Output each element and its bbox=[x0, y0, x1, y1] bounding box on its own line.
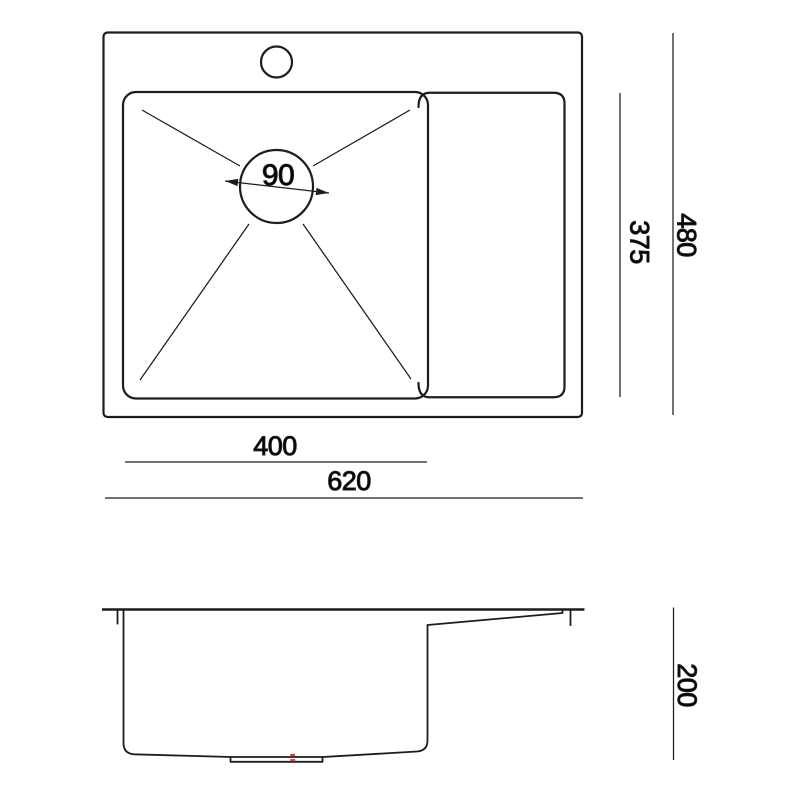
drainboard-outline bbox=[419, 93, 565, 398]
sink-technical-drawing: 90 375 480 400 620 bbox=[0, 0, 800, 800]
drain-center-mark-bottom bbox=[290, 759, 295, 761]
dim-label-sink-height: 200 bbox=[672, 663, 702, 707]
top-view: 90 bbox=[104, 33, 583, 418]
bowl-diagonal-bottom-left bbox=[140, 224, 249, 380]
outer-rim-outline bbox=[104, 33, 583, 418]
bowl-diagonal-top-right bbox=[313, 110, 410, 166]
top-view-dimensions: 375 480 400 620 bbox=[105, 33, 702, 498]
bowl-diagonal-bottom-right bbox=[303, 224, 411, 379]
side-bowl-left-profile bbox=[124, 610, 231, 758]
side-drain-flange bbox=[231, 757, 323, 762]
side-view-dimensions: 200 bbox=[672, 608, 702, 761]
faucet-hole bbox=[261, 47, 292, 78]
drawing-svg: 90 375 480 400 620 bbox=[0, 0, 800, 800]
drain-center-mark-top bbox=[290, 754, 295, 756]
dim-label-overall-depth: 480 bbox=[672, 213, 702, 257]
side-view bbox=[102, 610, 585, 762]
bowl-outline bbox=[123, 92, 428, 399]
bowl-diagonal-top-left bbox=[142, 110, 240, 166]
dim-label-bowl-width: 400 bbox=[253, 431, 297, 461]
arrowhead-right-icon bbox=[316, 188, 329, 195]
dim-label-drain-diameter: 90 bbox=[262, 159, 294, 192]
arrowhead-left-icon bbox=[225, 179, 238, 186]
side-bowl-right-profile bbox=[323, 610, 563, 758]
dim-label-overall-width: 620 bbox=[327, 466, 371, 496]
dim-label-bowl-depth: 375 bbox=[625, 220, 655, 264]
